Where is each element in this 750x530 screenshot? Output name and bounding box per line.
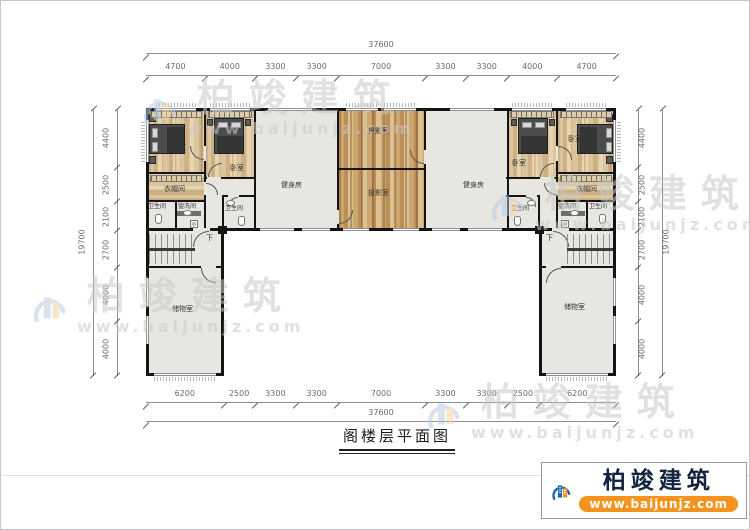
wall: [424, 108, 426, 231]
window-sill-hatch: [546, 377, 608, 381]
dim-left-total: 19700: [82, 108, 94, 376]
sink-icon: [570, 210, 579, 216]
window: [546, 373, 608, 376]
washing-machine-icon: [190, 220, 198, 228]
window: [468, 228, 502, 231]
window: [393, 228, 419, 231]
room-label-bathroom: 卫生间: [225, 206, 243, 212]
company-url: www.baijunjz.com: [579, 496, 738, 512]
stairs-down-label: 下: [546, 235, 553, 242]
door-opening: [424, 150, 426, 164]
company-logo-icon: [550, 469, 571, 513]
window: [302, 228, 330, 231]
window-sill-hatch: [156, 103, 196, 107]
window: [154, 373, 216, 376]
wardrobe-icon: [150, 175, 202, 182]
window: [260, 228, 294, 231]
wall: [507, 108, 509, 231]
column-block: [535, 226, 544, 234]
wall: [556, 108, 558, 231]
dim-right-total: 19700: [651, 108, 663, 376]
toilet-icon: [599, 214, 606, 224]
wardrobe-icon: [560, 175, 612, 182]
company-logo-block: 柏竣建筑 www.baijunjz.com: [541, 462, 747, 519]
window: [146, 278, 149, 306]
bed-icon: [518, 118, 548, 154]
room-label-washroom: 盥洗间: [558, 204, 576, 210]
window-sill-hatch: [566, 103, 606, 107]
drawing-title: 阁楼层平面图: [339, 425, 455, 454]
wall: [254, 108, 256, 231]
wardrobe-icon: [208, 111, 252, 118]
room-label-storage: 储物室: [172, 306, 193, 313]
wardrobe-icon: [510, 111, 554, 118]
brand-logo-icon: [29, 284, 69, 330]
bed-icon: [577, 124, 613, 154]
wardrobe-icon: [150, 111, 202, 118]
window: [346, 108, 378, 111]
door-opening: [556, 182, 558, 195]
company-name: 柏竣建筑: [603, 469, 715, 494]
window: [432, 228, 460, 231]
drawing-title-text: 阁楼层平面图: [339, 425, 455, 451]
stair-rail: [567, 248, 613, 251]
room-label-bedroom: 卧室: [172, 144, 186, 151]
window-sill-hatch: [346, 103, 378, 107]
wall: [146, 172, 206, 174]
window: [613, 278, 616, 306]
room-label-bathroom: 卫生间: [511, 206, 529, 212]
window-sill-hatch: [141, 120, 145, 162]
door-opening: [207, 177, 221, 179]
room-label-washroom: 盥洗间: [178, 204, 196, 210]
title-underline: [339, 453, 455, 454]
nightstand-icon: [207, 119, 213, 126]
room-label-gym: 健身房: [281, 182, 302, 189]
window: [146, 316, 149, 344]
room-label-projection: 投影室: [368, 190, 389, 197]
nightstand-icon: [606, 156, 613, 164]
window: [268, 108, 312, 111]
nightstand-icon: [549, 119, 555, 126]
wall: [338, 168, 424, 170]
room-label-projection: 投影室: [368, 128, 389, 135]
floor-plan-sheet: 37600 4700400033003300700033003300400047…: [0, 0, 750, 530]
room-label-bathroom: 卫生间: [148, 204, 166, 210]
window: [343, 228, 369, 231]
washing-machine-icon: [561, 220, 569, 228]
room-label-bedroom: 卧室: [230, 165, 244, 172]
window-sill-hatch: [210, 103, 250, 107]
wall: [586, 202, 588, 231]
room-label-bedroom: 卧室: [512, 160, 526, 167]
room-label-bathroom: 卫生间: [589, 204, 607, 210]
window-sill-hatch: [154, 377, 216, 381]
room-label-storage: 储物室: [564, 304, 585, 311]
door-opening: [540, 177, 554, 179]
window-sill-hatch: [384, 103, 416, 107]
toilet-icon: [238, 216, 245, 226]
door-opening: [204, 146, 206, 161]
column-block: [218, 226, 227, 234]
watermark-url: www.baijunjz.com: [471, 423, 698, 442]
wall: [175, 202, 177, 231]
dim-bottom-total: 37600: [146, 410, 616, 422]
room-label-gym: 健身房: [463, 182, 484, 189]
window-sill-hatch: [617, 120, 621, 162]
wardrobe-icon: [560, 111, 612, 118]
nightstand-icon: [149, 156, 156, 164]
room-label-cloakroom: 衣帽间: [164, 186, 185, 193]
dim-left-segments: 440025002100270040004000: [106, 108, 118, 376]
toilet-icon: [514, 216, 521, 226]
dim-bottom-segments: 620025003300330070003300330025006200: [146, 391, 616, 403]
nightstand-icon: [245, 119, 251, 126]
window: [450, 108, 494, 111]
nightstand-icon: [511, 119, 517, 126]
dim-right-segments: 440025002100270040004000: [627, 108, 639, 376]
dim-top-total: 37600: [146, 42, 616, 54]
window-sill-hatch: [512, 103, 552, 107]
window: [613, 120, 616, 162]
room-label-cloakroom: 衣帽间: [576, 186, 597, 193]
stairs-down-label: 下: [206, 235, 213, 242]
bed-icon: [214, 118, 244, 154]
room-label-bedroom: 卧室: [568, 136, 582, 143]
floor-plan: 卧室 卧室 衣帽间 卫生间 盥洗间 卫生间 健身房 投影室 投影室 健身房 卧室…: [146, 108, 616, 376]
window: [384, 108, 416, 111]
toilet-icon: [155, 214, 162, 224]
stair-rail: [149, 248, 195, 251]
wall: [556, 172, 616, 174]
wall: [204, 108, 206, 231]
window: [613, 316, 616, 344]
dim-top-segments: 470040003300330070003300330040004700: [146, 64, 616, 76]
sink-icon: [183, 210, 192, 216]
